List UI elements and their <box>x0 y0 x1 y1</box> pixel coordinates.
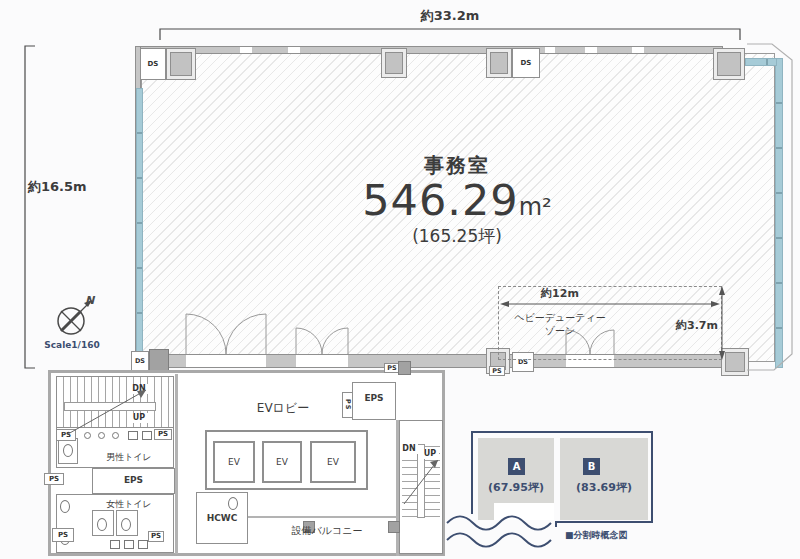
concept-outline <box>447 432 652 547</box>
linework-svg <box>0 0 800 559</box>
dim-line-left <box>25 46 35 368</box>
arrowhead <box>719 351 725 360</box>
arrowhead <box>719 286 725 295</box>
compass-icon <box>58 300 92 334</box>
arrowhead <box>430 460 438 468</box>
stair-flight-line <box>68 390 146 434</box>
arrowhead <box>711 301 720 307</box>
exterior-edge-right <box>747 44 792 370</box>
door-arcs <box>186 314 614 354</box>
arrowhead <box>500 301 509 307</box>
dim-line-top <box>160 29 740 40</box>
stair-flight-line <box>404 460 438 504</box>
floor-plan: DS DS DS PS PS DS 事務室 546.29m² (165.25坪)… <box>0 0 800 559</box>
